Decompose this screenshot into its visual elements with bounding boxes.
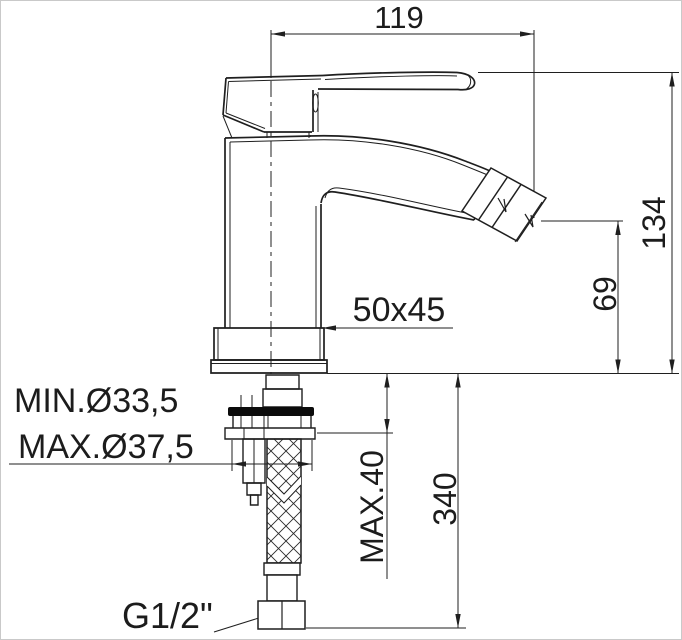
o-ring-seal: [228, 407, 314, 416]
dim-max-deck-thickness-label: MAX.40: [356, 432, 388, 582]
dim-base-footprint-label: 50x45: [339, 293, 459, 327]
mounting-washer: [225, 428, 315, 439]
base-flange: [211, 328, 327, 373]
dim-spout-reach-label: 119: [349, 2, 449, 33]
hose-end-nut: [258, 601, 305, 629]
aerator: [462, 168, 546, 242]
dimension-lines: [9, 30, 679, 632]
technical-drawing-canvas: 119 134 69 50x45 MIN.Ø33,5 MAX.Ø37,5 MAX…: [0, 0, 682, 640]
threaded-stud: [243, 439, 265, 505]
hole-max-diameter-label: MAX.Ø37,5: [18, 430, 194, 464]
inlet-connector: [241, 375, 302, 407]
supply-hose: [267, 439, 301, 563]
dim-overall-height-label: 134: [638, 178, 670, 268]
dim-outlet-height-label: 69: [589, 264, 621, 324]
mounting-shank: [233, 416, 311, 428]
hole-min-diameter-label: MIN.Ø33,5: [14, 384, 178, 418]
handle: [223, 72, 475, 138]
dim-hose-length-label: 340: [429, 459, 461, 539]
faucet-body: [225, 136, 321, 328]
thread-size-label: G1/2": [122, 598, 213, 634]
hose-ferrule: [264, 563, 300, 601]
